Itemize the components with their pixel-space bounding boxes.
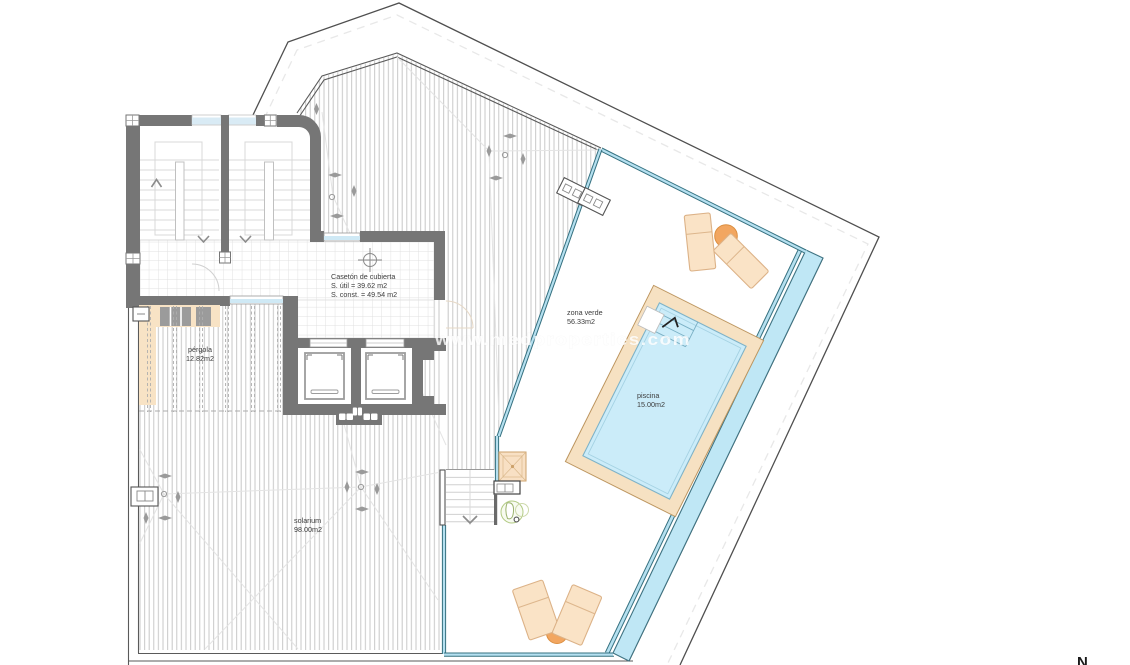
svg-text:pérgola: pérgola: [188, 345, 212, 354]
svg-text:15.00m2: 15.00m2: [637, 400, 665, 409]
svg-text:S. útil = 39.62 m2: S. útil = 39.62 m2: [331, 281, 387, 290]
svg-text:12.82m2: 12.82m2: [186, 354, 214, 363]
svg-text:56.33m2: 56.33m2: [567, 317, 595, 326]
svg-text:S. const. = 49.54 m2: S. const. = 49.54 m2: [331, 290, 397, 299]
svg-text:piscina: piscina: [637, 391, 659, 400]
svg-text:98.00m2: 98.00m2: [294, 525, 322, 534]
svg-text:solarium: solarium: [294, 516, 321, 525]
svg-text:N: N: [1077, 654, 1088, 665]
svg-text:www.medproperties.com: www.medproperties.com: [434, 331, 691, 349]
svg-text:zona verde: zona verde: [567, 308, 603, 317]
svg-text:Casetón de cubierta: Casetón de cubierta: [331, 272, 395, 281]
